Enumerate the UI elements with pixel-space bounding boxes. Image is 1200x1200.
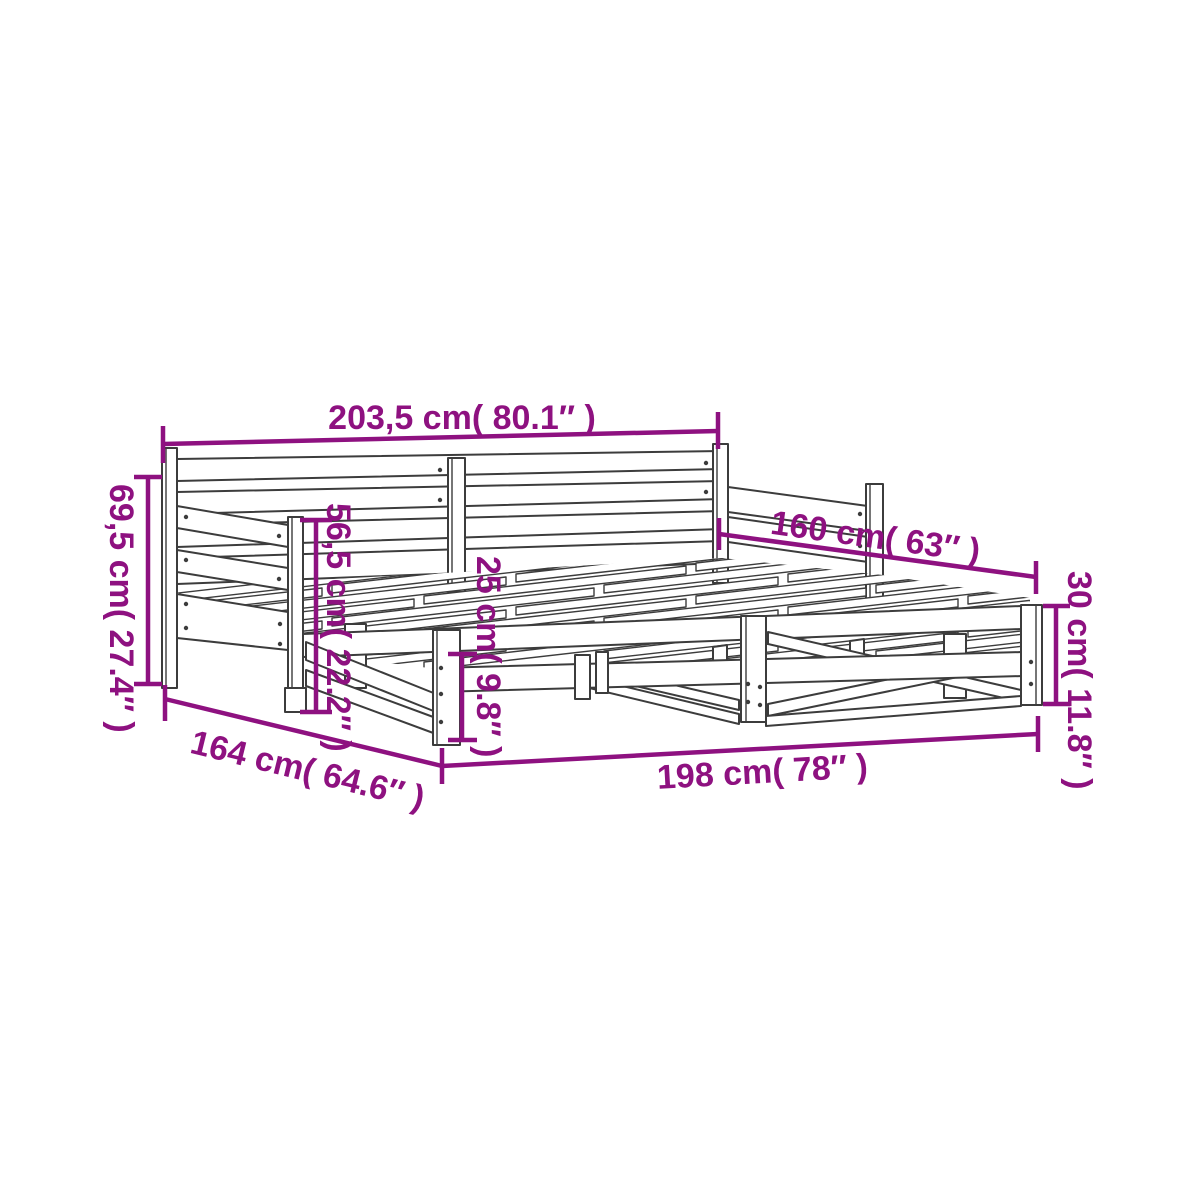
dimension-front-length: 198 cm( 78″ ) xyxy=(442,716,1038,797)
dimension-label-base-frame-height: 25 cm( 9.8″ ) xyxy=(469,556,507,758)
dimension-label-back-height: 69,5 cm( 27.4″ ) xyxy=(102,484,140,733)
dimension-label-armrest-height: 56,5 cm( 22.2″ ) xyxy=(319,503,357,752)
daybed-line-drawing: 203,5 cm( 80.1″ ) 69,5 cm( 27.4″ ) 56,5 … xyxy=(0,0,1200,1200)
dimension-label-trundle-height: 30 cm( 11.8″ ) xyxy=(1060,571,1098,790)
dimension-back-height: 69,5 cm( 27.4″ ) xyxy=(102,477,162,733)
dimension-label-total-length: 203,5 cm( 80.1″ ) xyxy=(328,399,596,437)
dimension-trundle-height: 30 cm( 11.8″ ) xyxy=(1043,571,1098,790)
dimension-label-floor-depth: 164 cm( 64.6″ ) xyxy=(187,723,428,817)
product-dimension-diagram: 203,5 cm( 80.1″ ) 69,5 cm( 27.4″ ) 56,5 … xyxy=(0,0,1200,1200)
